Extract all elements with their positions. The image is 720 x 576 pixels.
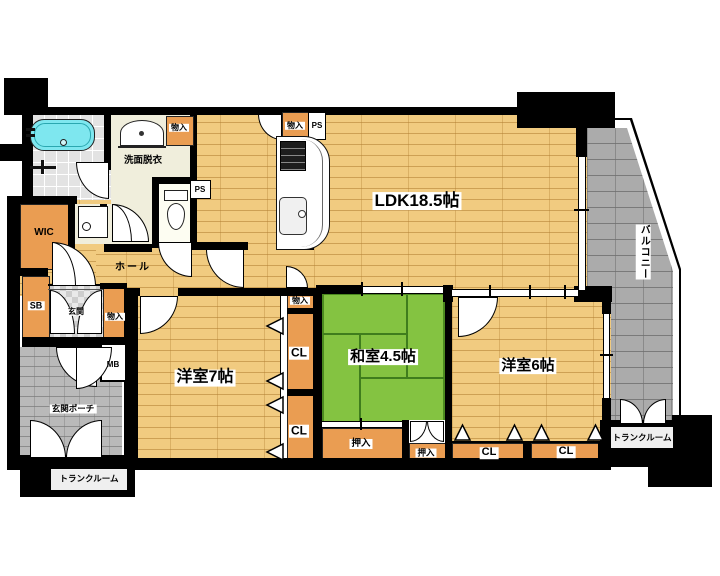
wall-ldk-bottom [316,285,362,294]
wall-left-lower [7,196,20,470]
label-cl-bottom-1: CL [480,447,499,459]
label-cl-bottom-2: CL [557,446,576,458]
stove [280,141,306,171]
wall-wic-bottom [7,268,48,276]
shower-mixer-icon [41,160,44,174]
folding-door-marker [532,423,551,442]
folding-door-marker [264,395,284,415]
wall-washitsu-right [445,293,452,463]
wall-closet-div-1 [287,308,313,314]
label-ps-kitchen: PS [312,122,323,130]
partition-tick [401,282,403,296]
wall-bump-left [0,144,22,161]
partition-tick [360,418,362,430]
label-yoshitsu7: 洋室7帖 [175,370,236,387]
toilet-tank [164,190,188,201]
window [578,157,586,290]
label-monoiri-entrance: 物入 [105,313,125,321]
label-oshiire-large: 押入 [349,439,372,449]
bath-faucet-icon [26,134,35,137]
wall-toilet-left [152,177,159,248]
partition-tick [361,282,363,296]
wall-yoshitsu6-east-a [602,296,611,314]
washbasin-drain [139,131,144,136]
wall-closet-div-2 [287,389,313,396]
wall-oshiire-post [402,420,409,463]
window-tick [600,354,613,356]
label-genkan-porch: 玄関ポーチ [50,405,97,414]
label-sb: SB [28,301,45,310]
washing-machine [78,206,108,238]
label-trunk-room-left: トランクルーム [60,475,119,484]
washbasin-counter-line [118,146,166,148]
tatami-line [323,333,407,335]
building-chunk-right-low [648,460,712,487]
washing-machine-drain [82,222,91,231]
folding-door-marker [264,442,284,462]
folding-door-marker [264,371,284,391]
folding-door-marker [586,423,605,442]
tatami-line [406,295,408,379]
wall-washroom-bottom [104,244,152,252]
wall-hall-bottom-a [124,288,140,296]
label-cl-column-2: CL [289,425,309,438]
label-cl-column-1: CL [289,347,309,360]
folding-door-marker [453,423,472,442]
label-genkan: 玄関 [66,308,86,316]
wall-left-upper [22,107,33,204]
partition-tick [564,285,566,299]
label-ldk: LDK18.5帖 [372,192,461,210]
sliding-partition-yoshitsu6 [452,289,578,297]
label-trunk-room-right: トランクルーム [613,434,672,443]
fusuma-oshiire [322,421,402,428]
label-monoiri-column: 物入 [290,297,310,305]
folding-door-marker [505,423,524,442]
folding-door-marker [264,316,284,336]
label-yoshitsu6: 洋室6帖 [499,358,556,374]
label-hall: ホール [115,263,151,274]
tatami-line [360,377,444,379]
label-washitsu: 和室4.5帖 [348,349,418,365]
wall-chunk-topright [517,92,615,128]
label-monoiri-washroom: 物入 [169,124,189,132]
genkan-step-line [48,289,103,290]
wall-monoiri-entrance-top [100,283,127,289]
label-mb: MB [107,361,119,369]
bathtub-drain [60,139,67,146]
bath-faucet-icon [26,128,35,131]
floorplan: LDK18.5帖 洋室7帖 和室4.5帖 洋室6帖 バルコニー ホール 洗面脱衣… [0,0,720,576]
faucet-icon [298,210,306,218]
label-ps-toilet: PS [195,186,206,194]
label-wic: WIC [34,228,53,239]
wall-bath-bottom [7,196,77,204]
wall-hall-bottom-b [178,288,322,296]
label-senmen-datsui: 洗面脱衣 [124,156,162,166]
label-balcony: バルコニー [636,225,651,280]
window [603,314,610,398]
partition-tick [529,285,531,299]
wall-cl-div [523,443,531,463]
wall-ldk-east [576,115,587,157]
label-oshiire-small: 押入 [415,449,436,458]
window-tick [574,209,589,211]
label-monoiri-kitchen: 物入 [285,122,305,130]
wall-closet-column-right [313,288,322,463]
